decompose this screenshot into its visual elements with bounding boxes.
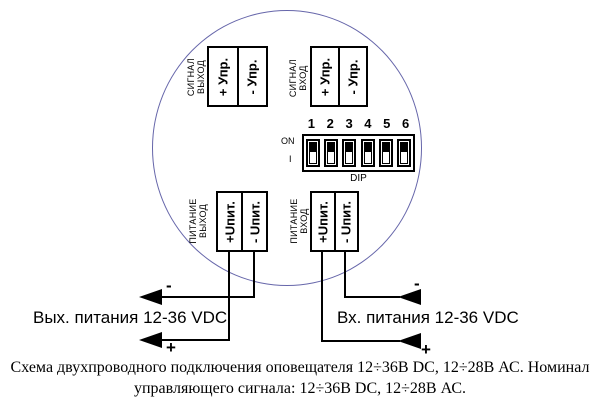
- caption-line-2: управляющего сигнала: 12÷36В DC, 12÷28В …: [0, 378, 600, 399]
- dip-switch-5: [379, 139, 393, 167]
- terminal-power-in-plus: +Uпит.: [312, 193, 334, 250]
- terminal-power-in-minus: - Uпит.: [334, 193, 358, 250]
- dip-number-1: 1: [302, 116, 321, 131]
- polarity-in-minus: -: [414, 274, 420, 294]
- dip-number-4: 4: [358, 116, 377, 131]
- signal-in-label: СИГНАЛ ВХОД: [288, 59, 308, 97]
- power-out-block-label: ПИТАНИЕ ВЫХОД: [188, 198, 208, 243]
- terminal-power-out-minus: - Uпит.: [241, 193, 266, 250]
- arrowhead-in-plus: [398, 333, 421, 349]
- terminal-signal-in-plus: + Упр.: [312, 48, 338, 105]
- wire-power-in-minus-vertical: [344, 250, 346, 298]
- terminal-label: - Упр.: [346, 59, 361, 94]
- power-in-line-label: Вх. питания 12-36 VDC: [337, 308, 519, 328]
- dip-slot: [345, 142, 353, 164]
- dip-knob: [328, 143, 334, 152]
- terminal-label: + Упр.: [318, 57, 333, 95]
- dip-on-label: ON: [281, 136, 295, 146]
- dip-slot: [400, 142, 408, 164]
- power-out-line-label: Вых. питания 12-36 VDC: [33, 308, 227, 328]
- dip-number-3: 3: [340, 116, 359, 131]
- dip-i-label: I: [289, 154, 292, 164]
- wire-power-in-plus-horizontal: [321, 340, 400, 342]
- terminal-signal-out-minus: - Упр.: [237, 48, 267, 105]
- polarity-out-minus: -: [166, 276, 172, 296]
- wiring-diagram: СИГНАЛ ВЫХОД + Упр. - Упр. СИГНАЛ ВХОД +…: [0, 0, 600, 402]
- dip-number-5: 5: [377, 116, 396, 131]
- dip-switch-2: [324, 139, 338, 167]
- terminal-block-power-out: +Uпит. - Uпит.: [216, 191, 268, 252]
- wire-power-in-plus-vertical: [321, 250, 323, 342]
- dip-switch-3: [342, 139, 356, 167]
- terminal-label: - Uпит.: [247, 200, 262, 242]
- dip-number-2: 2: [321, 116, 340, 131]
- arrowhead-out-plus: [139, 332, 162, 348]
- dip-switch-block: [302, 134, 415, 172]
- power-in-block-label: ПИТАНИЕ ВХОД: [289, 198, 309, 243]
- polarity-out-plus: +: [166, 338, 176, 358]
- terminal-label: - Uпит.: [339, 200, 354, 242]
- terminal-power-out-plus: +Uпит.: [218, 193, 241, 250]
- terminal-block-signal-in: + Упр. - Упр.: [310, 46, 368, 107]
- signal-out-label: СИГНАЛ ВЫХОД: [186, 58, 206, 96]
- terminal-label: +Uпит.: [315, 201, 330, 243]
- caption-line-1: Схема двухпроводного подключения оповеща…: [0, 357, 600, 378]
- dip-slot: [309, 142, 317, 164]
- terminal-block-signal-out: + Упр. - Упр.: [207, 46, 268, 107]
- dip-switch-numbers: 1 2 3 4 5 6: [302, 116, 415, 131]
- terminal-block-power-in: +Uпит. - Uпит.: [310, 191, 359, 252]
- dip-switch-4: [361, 139, 375, 167]
- dip-knob: [365, 143, 371, 152]
- dip-knob: [383, 143, 389, 152]
- dip-slot: [327, 142, 335, 164]
- dip-caption: DIP: [302, 173, 415, 184]
- terminal-signal-out-plus: + Упр.: [209, 48, 237, 105]
- wire-power-out-minus-horizontal: [158, 296, 255, 298]
- dip-number-6: 6: [396, 116, 415, 131]
- dip-slot: [382, 142, 390, 164]
- dip-slot: [364, 142, 372, 164]
- arrowhead-out-minus: [139, 289, 162, 305]
- dip-switch-6: [397, 139, 411, 167]
- terminal-label: + Упр.: [215, 57, 230, 95]
- diagram-caption: Схема двухпроводного подключения оповеща…: [0, 357, 600, 399]
- dip-switch-1: [306, 139, 320, 167]
- dip-knob: [310, 143, 316, 152]
- terminal-label: +Uпит.: [222, 201, 237, 243]
- terminal-signal-in-minus: - Упр.: [338, 48, 366, 105]
- dip-knob: [401, 143, 407, 152]
- wire-power-in-minus-horizontal: [344, 296, 400, 298]
- terminal-label: - Упр.: [245, 59, 260, 94]
- dip-knob: [346, 143, 352, 152]
- wire-power-out-minus-vertical: [253, 250, 255, 298]
